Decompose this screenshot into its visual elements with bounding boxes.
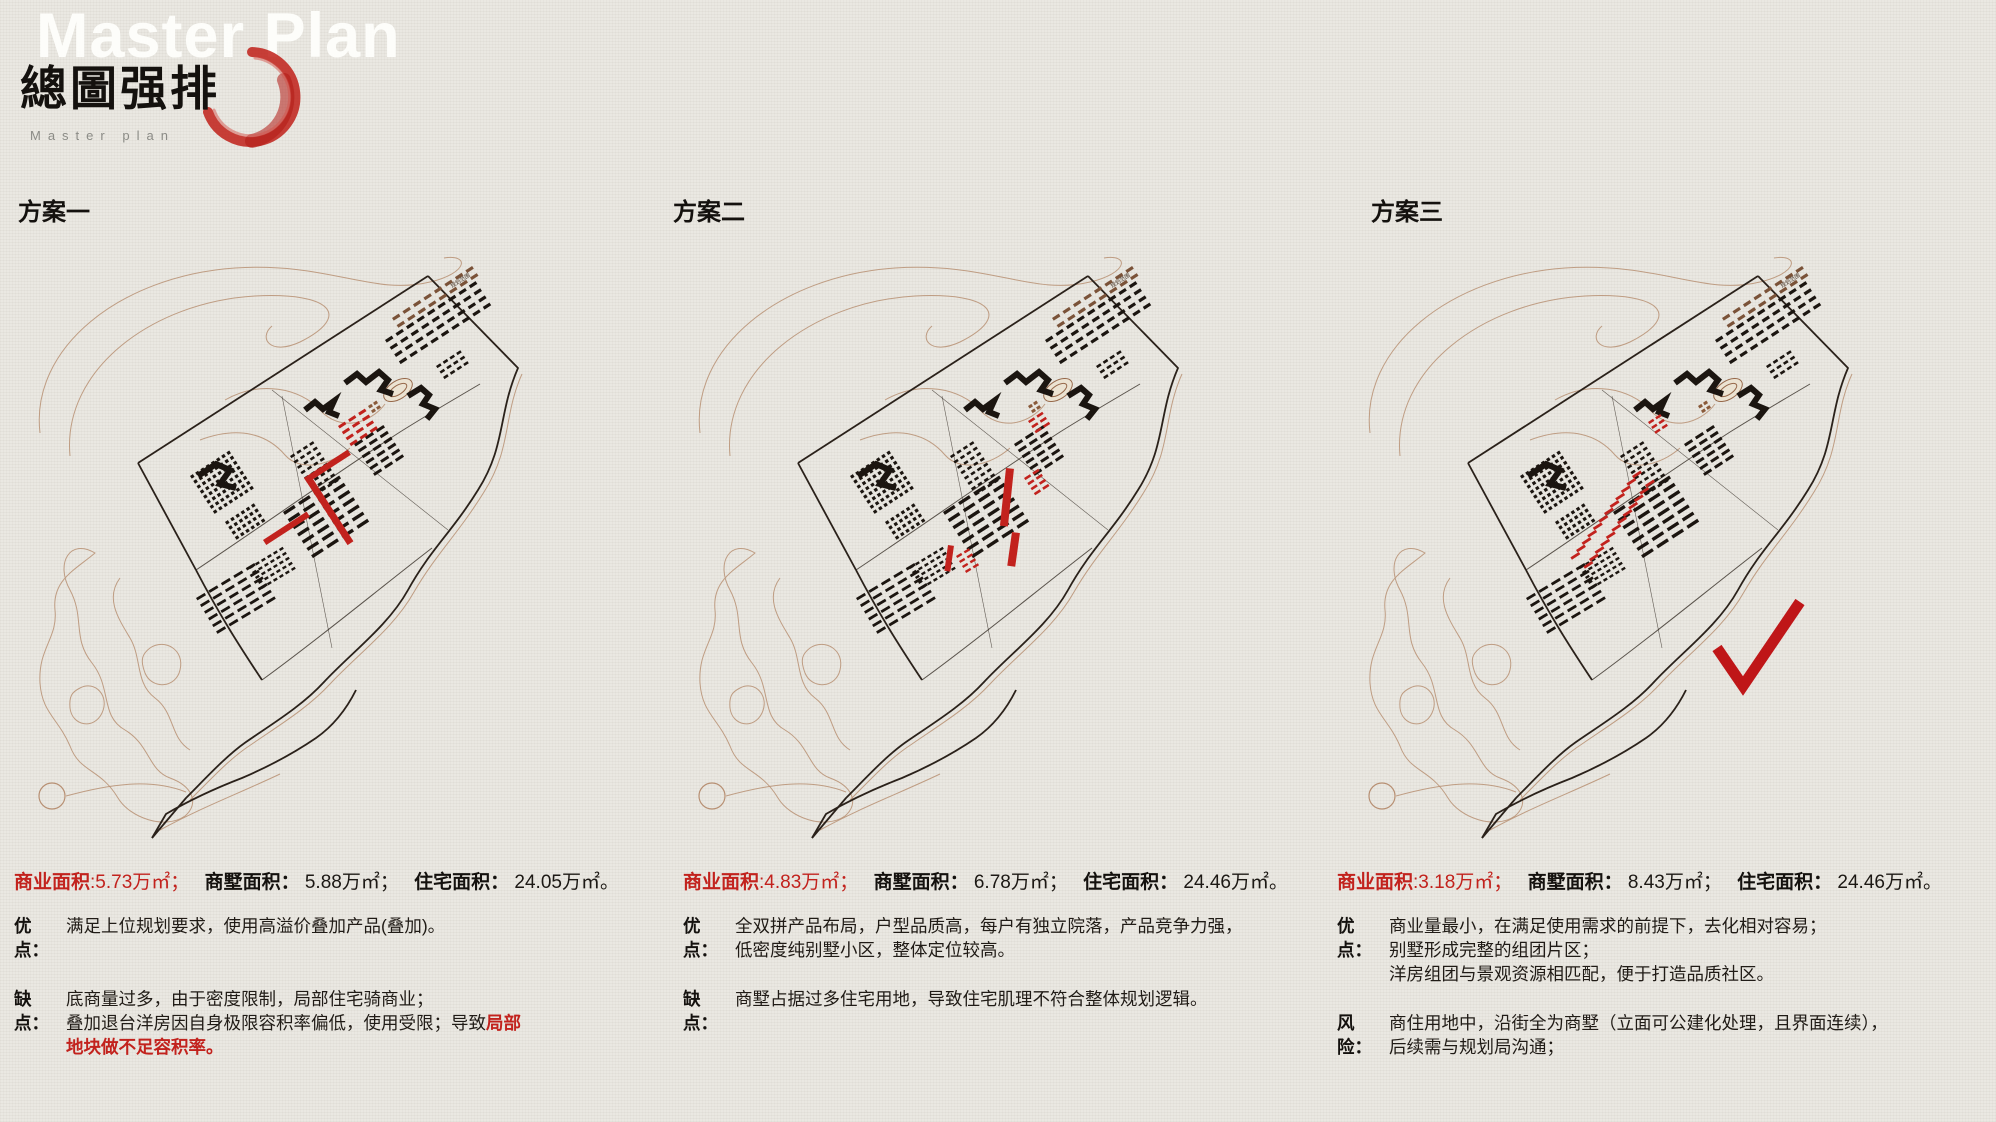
point-block: 风险：商住用地中，沿街全为商墅（立面可公建化处理，且界面连续），后续需与规划局沟… (1337, 1011, 1989, 1059)
point-text: 商住用地中，沿街全为商墅（立面可公建化处理，且界面连续），后续需与规划局沟通； (1389, 1011, 1989, 1059)
residential-area-label: 住宅面积： (1737, 872, 1832, 893)
commercial-area-value: :3.18万㎡； (1413, 872, 1512, 893)
villa-area-label: 商墅面积： (874, 872, 969, 893)
scheme-column-2: 方案二 规划范围 商业面积:4.83万㎡； 商墅面积： 6.78万㎡； 住宅面积… (660, 0, 1326, 1122)
site-plan-scheme-3: 规划范围 (1330, 218, 1990, 862)
point-label: 优点： (14, 914, 66, 962)
point-text: 满足上位规划要求，使用高溢价叠加产品(叠加)。 (66, 914, 666, 962)
site-plan-scheme-2: 规划范围 (660, 218, 1320, 862)
villa-area-value: 6.78万㎡； (969, 872, 1068, 893)
pros-cons-list: 优点：全双拼产品布局，户型品质高，每户有独立院落，产品竞争力强，低密度纯别墅小区… (683, 914, 1335, 1060)
point-label: 缺点： (14, 987, 66, 1059)
approved-checkmark-icon (1712, 596, 1808, 696)
site-plan-drawing: 规划范围 (1330, 218, 1990, 862)
point-text: 商业量最小，在满足使用需求的前提下，去化相对容易；别墅形成完整的组团片区；洋房组… (1389, 914, 1989, 986)
master-plan-slide: Master Plan 總圖强排 Master plan 方案一 规划范围 商业… (0, 0, 1996, 1122)
residential-area-label: 住宅面积： (414, 872, 509, 893)
residential-area-value: 24.46万㎡。 (1832, 872, 1942, 893)
scheme-column-3: 方案三 规划范围 商业面积:3.18万㎡； 商墅面积： 8.43万㎡； 住宅面积… (1330, 0, 1996, 1122)
villa-area-label: 商墅面积： (1528, 872, 1623, 893)
site-plan-drawing: 规划范围 (0, 218, 660, 862)
commercial-area-label: 商业面积 (14, 872, 90, 893)
point-text: 底商量过多，由于密度限制，局部住宅骑商业；叠加退台洋房因自身极限容积率偏低，使用… (66, 987, 666, 1059)
point-text: 全双拼产品布局，户型品质高，每户有独立院落，产品竞争力强，低密度纯别墅小区，整体… (735, 914, 1335, 962)
point-block: 缺点：底商量过多，由于密度限制，局部住宅骑商业；叠加退台洋房因自身极限容积率偏低… (14, 987, 666, 1059)
residential-area-value: 24.05万㎡。 (509, 872, 619, 893)
point-block: 优点：商业量最小，在满足使用需求的前提下，去化相对容易；别墅形成完整的组团片区；… (1337, 914, 1989, 986)
commercial-area-label: 商业面积 (683, 872, 759, 893)
villa-area-value: 8.43万㎡； (1623, 872, 1722, 893)
site-plan-drawing: 规划范围 (660, 218, 1320, 862)
point-block: 缺点：商墅占据过多住宅用地，导致住宅肌理不符合整体规划逻辑。 (683, 987, 1335, 1035)
villa-area-label: 商墅面积： (205, 872, 300, 893)
point-label: 优点： (1337, 914, 1389, 986)
residential-area-value: 24.46万㎡。 (1178, 872, 1288, 893)
area-stats: 商业面积:5.73万㎡； 商墅面积： 5.88万㎡； 住宅面积： 24.05万㎡… (14, 870, 664, 896)
villa-area-value: 5.88万㎡； (300, 872, 399, 893)
point-text: 商墅占据过多住宅用地，导致住宅肌理不符合整体规划逻辑。 (735, 987, 1335, 1035)
commercial-area-value: :4.83万㎡； (759, 872, 858, 893)
scheme-column-1: 方案一 规划范围 商业面积:5.73万㎡； 商墅面积： 5.88万㎡； 住宅面积… (0, 0, 666, 1122)
area-stats: 商业面积:3.18万㎡； 商墅面积： 8.43万㎡； 住宅面积： 24.46万㎡… (1337, 870, 1987, 896)
risk-pros-list: 优点：商业量最小，在满足使用需求的前提下，去化相对容易；别墅形成完整的组团片区；… (1337, 914, 1989, 1084)
point-label: 缺点： (683, 987, 735, 1035)
pros-cons-list: 优点：满足上位规划要求，使用高溢价叠加产品(叠加)。缺点：底商量过多，由于密度限… (14, 914, 666, 1084)
point-block: 优点：全双拼产品布局，户型品质高，每户有独立院落，产品竞争力强，低密度纯别墅小区… (683, 914, 1335, 962)
commercial-area-value: :5.73万㎡； (90, 872, 189, 893)
commercial-area-label: 商业面积 (1337, 872, 1413, 893)
site-plan-scheme-1: 规划范围 (0, 218, 660, 862)
point-block: 优点：满足上位规划要求，使用高溢价叠加产品(叠加)。 (14, 914, 666, 962)
residential-area-label: 住宅面积： (1083, 872, 1178, 893)
point-label: 风险： (1337, 1011, 1389, 1059)
point-label: 优点： (683, 914, 735, 962)
area-stats: 商业面积:4.83万㎡； 商墅面积： 6.78万㎡； 住宅面积： 24.46万㎡… (683, 870, 1333, 896)
